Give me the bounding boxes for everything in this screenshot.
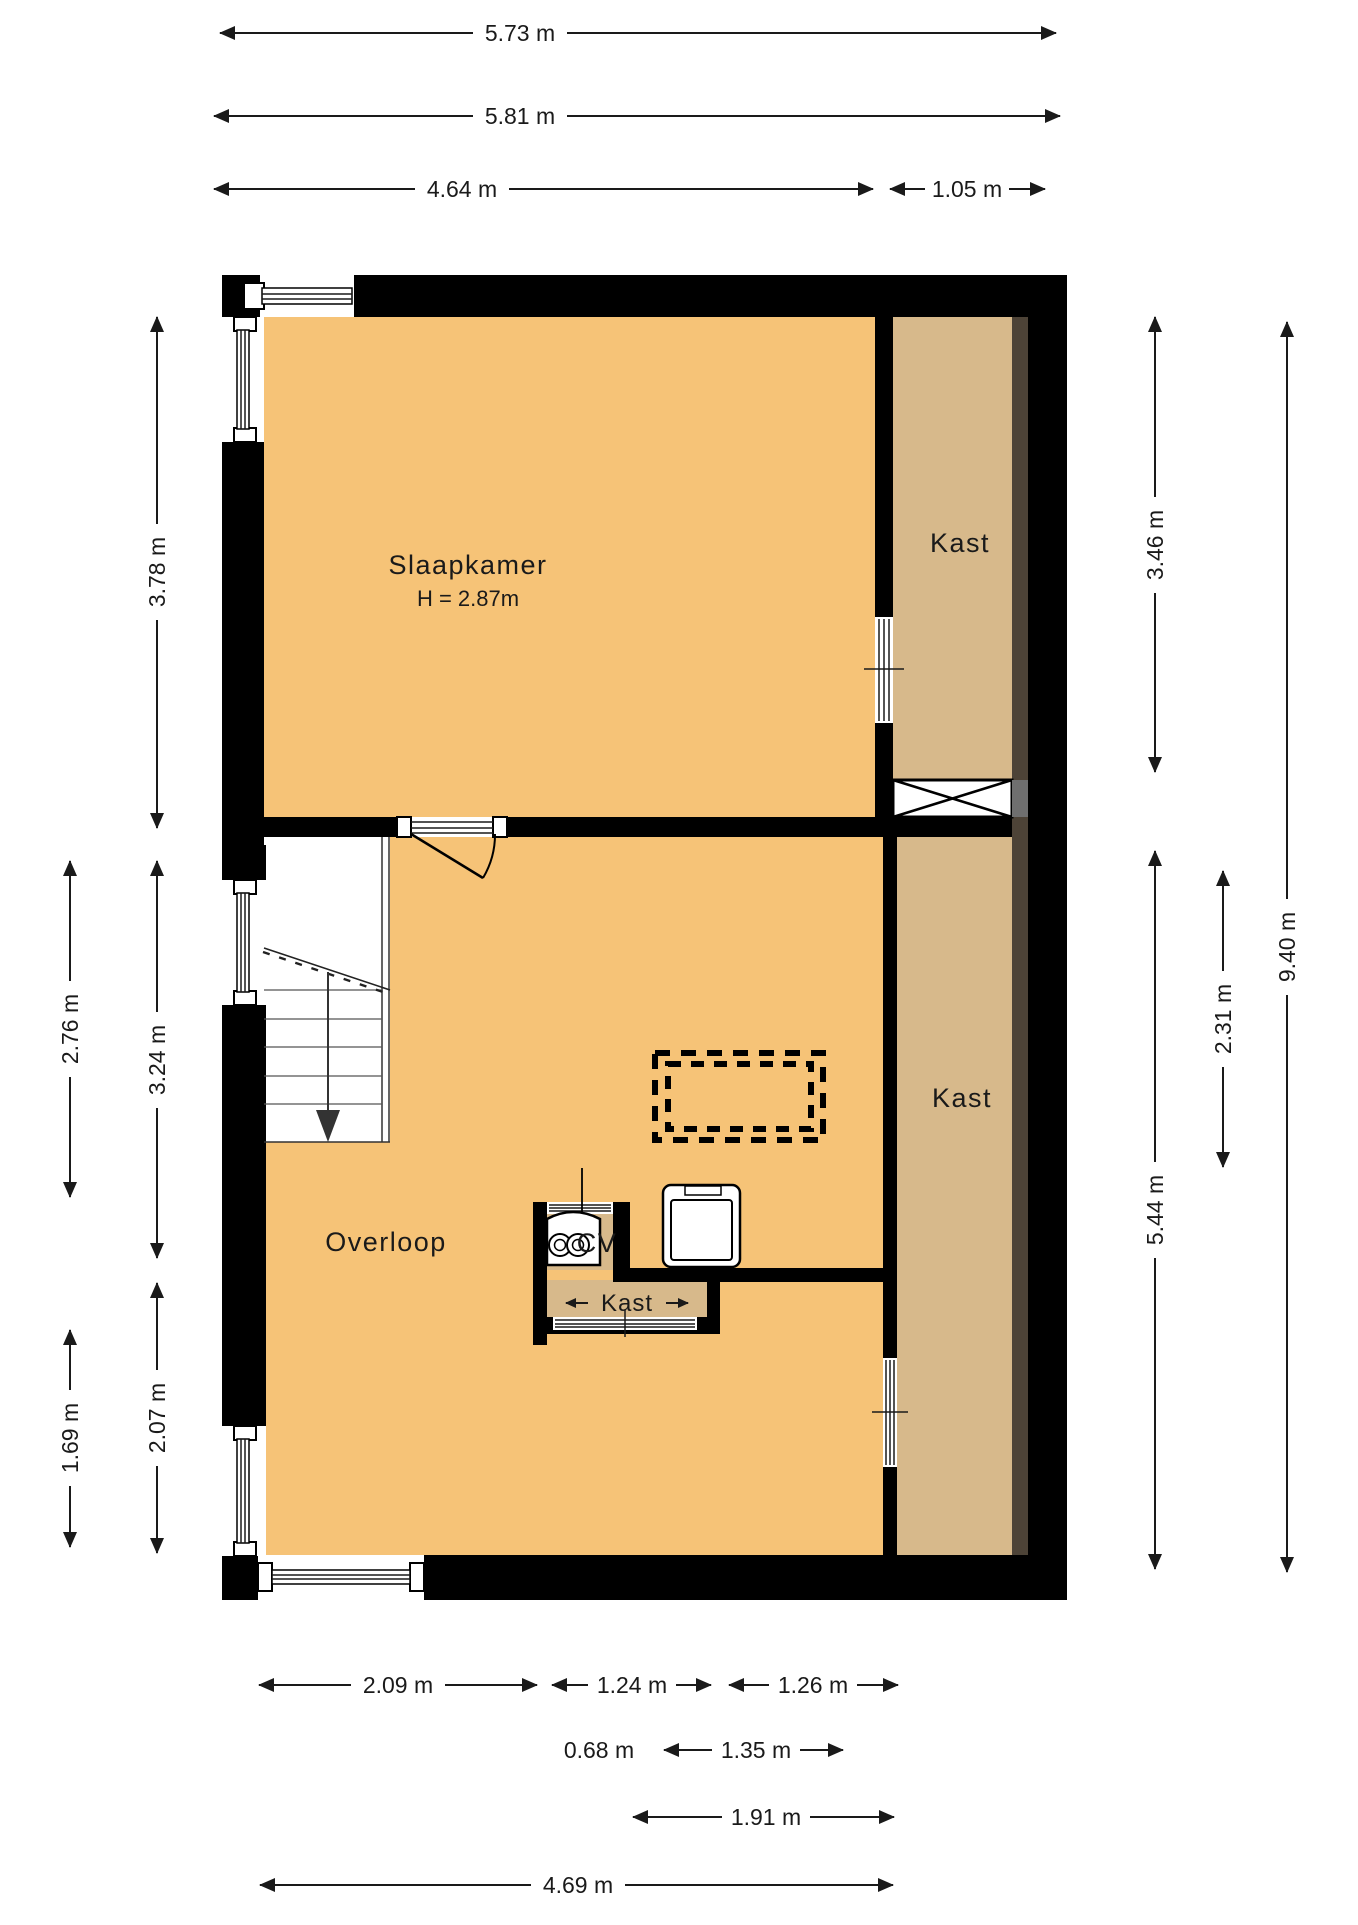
room-label-kast-small: Kast [601, 1290, 653, 1317]
dim-label: 5.44 m [1142, 1175, 1168, 1245]
dimensions-top: 5.73 m 5.81 m 4.64 m 1.05 m [214, 20, 1060, 202]
washing-machine-icon [663, 1185, 740, 1267]
dim-label: 4.69 m [543, 1872, 613, 1898]
window-icon-top [244, 275, 354, 317]
dim-label: 1.05 m [932, 176, 1002, 202]
dim-label: 1.24 m [597, 1672, 667, 1698]
dim-label: 2.07 m [144, 1383, 170, 1453]
dim-label: 3.78 m [144, 537, 170, 607]
window-icon-left-upper [222, 317, 264, 442]
floor-plan-drawing: Slaapkamer H = 2.87m Kast Kast Overloop … [0, 0, 1358, 1920]
dim-label: 2.76 m [57, 994, 83, 1064]
floor-plan-page: Slaapkamer H = 2.87m Kast Kast Overloop … [0, 0, 1358, 1920]
dimensions-left: 3.78 m 3.24 m 2.07 m 2.76 m 1.69 m [57, 317, 170, 1553]
shaft-xbox-icon [893, 780, 1028, 817]
room-fills [262, 317, 1012, 1555]
room-label-kast-top: Kast [930, 528, 990, 558]
dim-label: 3.46 m [1142, 510, 1168, 580]
dim-label: 1.35 m [721, 1737, 791, 1763]
wall-kast-small-rim [533, 1330, 720, 1334]
dim-label: 9.40 m [1274, 912, 1300, 982]
wall-cv-east [617, 1268, 883, 1282]
dim-label: 4.64 m [427, 176, 497, 202]
wall-kast-small-br [695, 1317, 720, 1332]
window-icon-left-middle [222, 880, 266, 1005]
wall-kast-small-bl [533, 1317, 555, 1332]
wall-right [1028, 275, 1067, 1600]
room-height-note: H = 2.87m [417, 586, 519, 611]
room-label-overloop: Overloop [325, 1227, 447, 1257]
window-icon-bottom [258, 1555, 424, 1600]
window-icon-left-lower [222, 1426, 266, 1556]
dimensions-bottom: 2.09 m 1.24 m 1.26 m 0.68 m 1.35 m 1.91 … [259, 1672, 898, 1898]
dimensions-right: 3.46 m 5.44 m 2.31 m 9.40 m [1142, 317, 1300, 1572]
room-label-kast-right: Kast [932, 1083, 992, 1113]
room-label-slaapkamer: Slaapkamer [388, 550, 547, 580]
wardrobe-strip [1012, 317, 1028, 1555]
dim-label: 3.24 m [144, 1025, 170, 1095]
dim-label: 1.91 m [731, 1804, 801, 1830]
dim-label: 1.69 m [57, 1403, 83, 1473]
wall-slaapkamer-south [222, 817, 1028, 837]
dim-label: 5.73 m [485, 20, 555, 46]
dim-label: 1.26 m [778, 1672, 848, 1698]
dim-label: 2.09 m [363, 1672, 433, 1698]
dim-label: 5.81 m [485, 103, 555, 129]
wall-divider-kast-top [875, 317, 893, 817]
room-label-cv: CV [577, 1228, 618, 1258]
room-kast-right-floor [897, 837, 1012, 1555]
dim-label: 0.68 m [564, 1737, 634, 1763]
dim-label: 2.31 m [1210, 984, 1236, 1054]
room-slaapkamer-floor [262, 317, 875, 817]
